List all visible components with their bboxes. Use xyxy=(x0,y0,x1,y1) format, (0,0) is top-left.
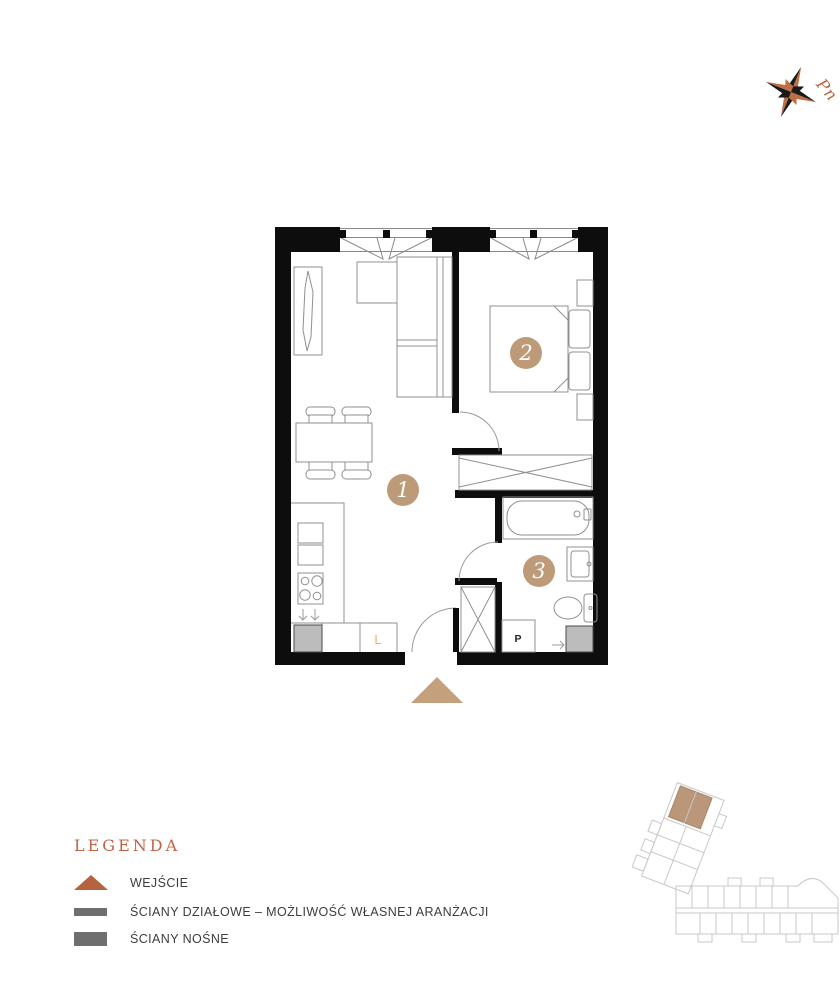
nightstand-top xyxy=(577,280,593,306)
svg-text:1: 1 xyxy=(396,478,409,502)
entrance-marker xyxy=(411,677,463,703)
legend-item-partition-walls: ŚCIANY DZIAŁOWE – MOŻLIWOŚĆ WŁASNEJ ARAN… xyxy=(74,905,554,919)
hall-wardrobe xyxy=(461,587,495,652)
svg-text:2: 2 xyxy=(518,341,532,365)
entrance-door-arc xyxy=(412,608,456,652)
utility-shaft-bathroom xyxy=(566,626,593,652)
bathtub xyxy=(503,497,593,539)
legend-item-entrance: WEJŚCIE xyxy=(74,875,554,890)
bedroom-door-arc xyxy=(460,412,499,451)
room-3-badge: 3 xyxy=(523,555,555,587)
vent-arrows-icon xyxy=(299,609,319,620)
building-locator-map xyxy=(630,778,838,942)
entrance-door-leaf xyxy=(453,608,459,652)
shaft-arrow-icon xyxy=(552,641,564,649)
legend-title: LEGENDA xyxy=(74,836,554,855)
washbasin xyxy=(567,547,593,581)
apartment-floor-plan-page: Pn xyxy=(0,0,840,1000)
legend-item-label: ŚCIANY NOŚNE xyxy=(130,932,229,946)
fridge xyxy=(298,523,323,565)
legend-item-label: WEJŚCIE xyxy=(130,876,188,890)
legend-item-label: ŚCIANY DZIAŁOWE – MOŻLIWOŚĆ WŁASNEJ ARAN… xyxy=(130,905,489,919)
nightstand-bottom xyxy=(577,394,593,420)
room-2-badge: 2 xyxy=(510,337,542,369)
bedroom-built-in-wardrobe xyxy=(459,455,592,490)
svg-text:3: 3 xyxy=(532,559,545,583)
toilet xyxy=(554,594,597,622)
compass-rose: Pn xyxy=(756,54,840,134)
entrance-triangle-icon xyxy=(74,875,108,890)
load-bearing-wall-icon xyxy=(74,932,107,946)
fridge-label: L xyxy=(374,632,381,647)
room-1-badge: 1 xyxy=(387,474,419,506)
bathroom-door-arc xyxy=(459,542,498,581)
legend: LEGENDA WEJŚCIE ŚCIANY DZIAŁOWE – MOŻLIW… xyxy=(74,836,554,959)
legend-item-load-bearing-walls: ŚCIANY NOŚNE xyxy=(74,932,554,946)
wall-mirror xyxy=(294,267,322,355)
north-label: Pn xyxy=(812,74,840,105)
dining-table xyxy=(296,407,372,479)
stove xyxy=(298,573,323,604)
partition-wall-icon xyxy=(74,908,107,916)
utility-shaft-kitchen xyxy=(294,625,322,652)
sofa xyxy=(357,257,452,397)
washing-machine-label: P xyxy=(514,633,521,645)
